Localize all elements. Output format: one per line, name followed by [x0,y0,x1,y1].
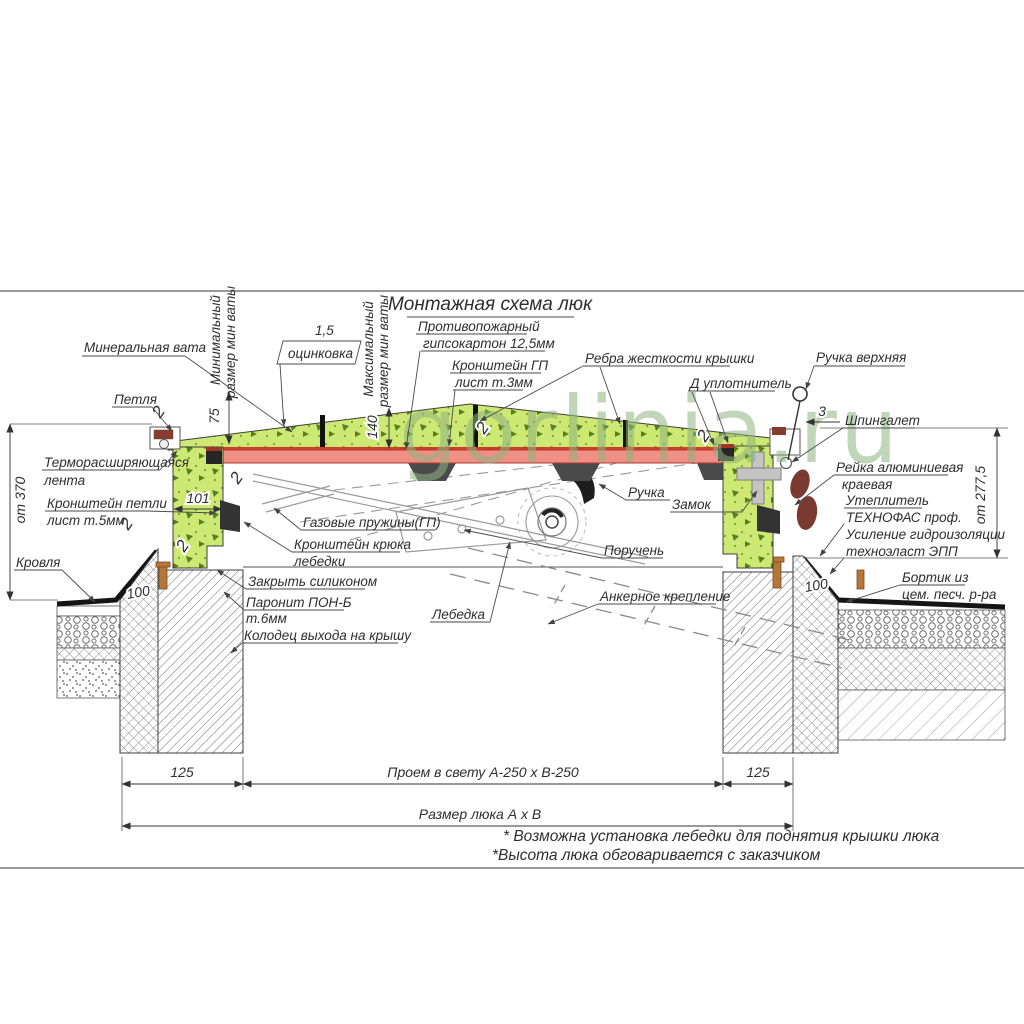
winch-pulley-hub [546,516,558,528]
leader [548,604,598,624]
label-zinc-value: 1,5 [315,323,334,338]
lid-rib-1 [320,415,325,450]
label-shaft: Колодец выхода на крышу [244,628,412,643]
ladder-rung-2 [642,606,655,629]
roof-sand-layer [57,660,120,698]
label-alu-rail-2: краевая [842,477,892,492]
label-paronite-2: т.6мм [246,611,287,626]
label-curb-2: цем. песч. р-ра [902,587,997,602]
roof-pebble-layer-right [838,610,1005,648]
leader [274,508,301,530]
label-max-size-1: Максимальный [361,301,376,397]
label-fireproof-2: гипсокартон 12,5мм [423,336,555,351]
winch-plate-hole3 [496,516,504,524]
leader [820,524,844,556]
label-hook-bracket-1: Кронштейн крюка [294,537,411,552]
leader [599,484,626,500]
label-silicone: Закрыть силиконом [248,574,377,589]
label-ribs: Ребра жесткости крышки [585,351,755,366]
concrete-column-right [723,572,793,753]
seal-red-left [206,447,222,451]
label-anchor: Анкерное крепление [599,589,730,604]
winch-plate-hole2 [458,525,466,533]
ladder-rung-1 [552,585,565,608]
roof-crosshatch-layer [57,648,120,660]
label-seal: Д уплотнитель [688,376,792,391]
dim-140: 140 [364,415,380,439]
dim-101: 101 [186,490,209,506]
leader [185,356,292,432]
roof-screed-layer [57,606,120,616]
hinge-roller [160,440,169,449]
hinge-pin [154,430,173,439]
winch-plate-hole1 [424,532,432,540]
label-insulation-2: ТЕХНОФАС проф. [846,510,962,525]
weld-mark-2: 2 [225,468,247,488]
dim-125-right: 125 [746,764,770,780]
label-paronite-1: Паронит ПОН-Б [246,595,352,610]
dim-75: 75 [206,408,222,424]
seal-block-left [206,450,222,464]
curb-left [120,549,158,753]
label-alu-rail-1: Рейка алюминиевая [836,460,963,475]
note-line-1: * Возможна установка лебедки для подняти… [503,828,940,845]
dim-opening: Проем в свету А-250 х В-250 [387,764,579,780]
roof-crosshatch-layer-right [838,648,1005,690]
label-bracket-gp-2: лист т.3мм [454,375,533,390]
label-insulation-1: Утеплитель [845,493,929,508]
roof-footing-layer-right [838,690,1005,740]
dim-277: от 277,5 [972,466,988,525]
label-min-size-1: Минимальный [208,295,223,385]
leader [244,522,292,552]
label-waterproof-1: Усиление гидроизоляции [845,527,1005,542]
label-min-size-2: размер мин ваты [223,286,238,399]
label-fireproof-1: Противопожарный [418,319,540,334]
leader [464,530,602,558]
note-line-2: *Высота люка обговаривается с заказчиком [492,847,821,864]
label-latch: Шпингалет [845,413,920,428]
label-roof: Кровля [16,555,60,570]
dim-125-left: 125 [170,764,194,780]
label-bracket-gp-1: Кронштейн ГП [452,358,548,373]
anchor-bolt-right [773,561,781,588]
label-zinc: оцинковка [288,346,353,361]
label-max-size-2: размер мин ваты [376,295,391,408]
label-winch: Лебедка [431,607,486,622]
label-mineral-wool: Минеральная вата [84,340,207,355]
winch-pulley-outer-phantom [518,488,586,556]
wall-left [120,549,243,753]
drawing-title: Монтажная схема люк [388,294,593,315]
dim-370: от 370 [12,476,28,523]
label-lock: Замок [672,497,712,512]
anchor-bolt-left [159,566,167,589]
dim-3: 3 [818,403,826,419]
label-hinge-bracket-2: лист т.5мм [46,513,125,528]
label-thermal-2: лента [43,473,86,488]
label-hook-bracket-2: лебедки [293,554,346,569]
watermark-text: gorlinia.ru [399,377,901,484]
label-handle: Ручка [628,485,665,500]
winch-pulley-rim [526,496,578,548]
leader [830,558,844,574]
leader [62,570,95,602]
anchor-bolt-left-cap [156,562,170,567]
label-hinge-bracket-1: Кронштейн петли [47,496,167,511]
leader [280,364,284,426]
latch-lever-lower [795,495,820,531]
roof-pebble-layer [57,616,120,648]
label-gas-springs: Газовые пружины(ГП) [303,515,441,530]
anchor-bolt-curb [857,570,864,589]
hinge-bracket-wedge-left [220,500,240,532]
label-curb-1: Бортик из [902,570,968,585]
label-handle-top: Ручка верхняя [816,350,906,365]
hook-bracket-wedge-right [757,505,780,534]
label-handrail: Поручень [604,543,664,558]
label-hinge: Петля [114,392,157,407]
label-waterproof-2: техноэласт ЭПП [846,544,958,559]
dim-hatch-size: Размер люка А х В [419,806,541,822]
technical-drawing: gorlinia.ru от 370 от 277,5 75 140 101 1… [0,0,1024,1024]
